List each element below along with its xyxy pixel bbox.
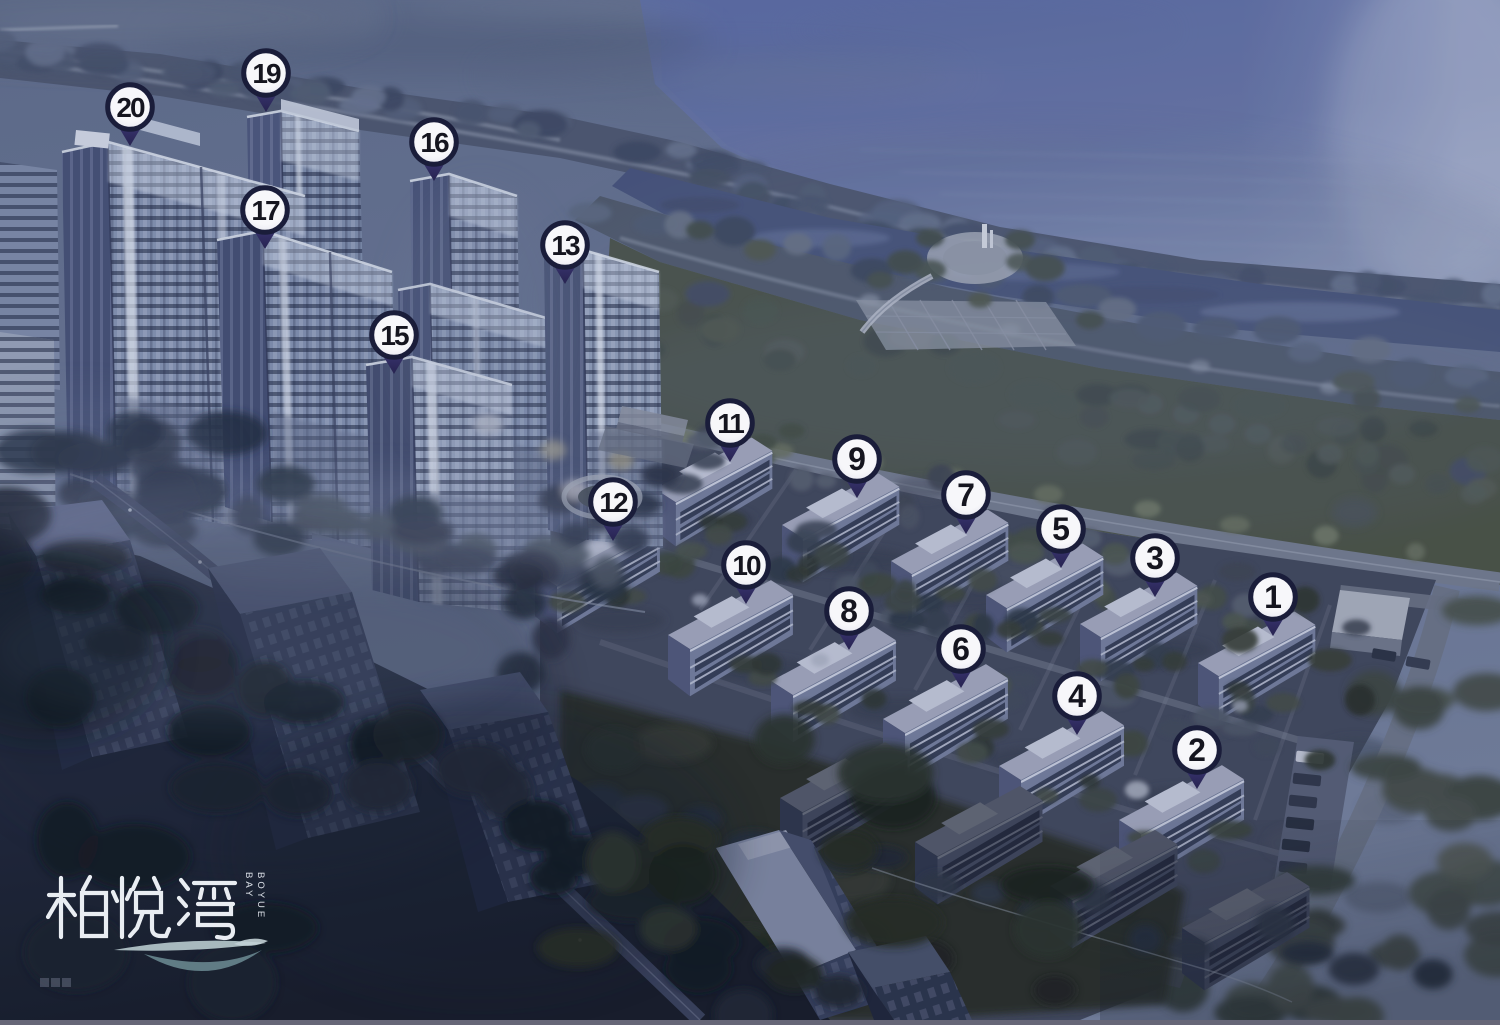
svg-text:BOYUE: BOYUE xyxy=(255,872,266,920)
svg-text:10: 10 xyxy=(732,550,761,581)
svg-text:13: 13 xyxy=(551,230,580,261)
svg-text:1: 1 xyxy=(1264,579,1282,615)
svg-text:3: 3 xyxy=(1146,540,1164,576)
svg-text:4: 4 xyxy=(1068,678,1086,714)
svg-text:17: 17 xyxy=(251,195,280,226)
svg-text:2: 2 xyxy=(1188,732,1206,768)
svg-text:BAY: BAY xyxy=(243,872,254,899)
svg-text:8: 8 xyxy=(840,593,858,629)
svg-text:5: 5 xyxy=(1052,511,1070,547)
svg-text:11: 11 xyxy=(717,408,744,439)
svg-text:9: 9 xyxy=(848,441,866,477)
svg-text:12: 12 xyxy=(599,487,628,518)
svg-text:15: 15 xyxy=(380,320,409,351)
svg-text:6: 6 xyxy=(952,631,970,667)
svg-text:7: 7 xyxy=(957,477,975,513)
svg-text:20: 20 xyxy=(116,92,145,123)
svg-text:19: 19 xyxy=(252,58,281,89)
svg-text:16: 16 xyxy=(420,127,449,158)
